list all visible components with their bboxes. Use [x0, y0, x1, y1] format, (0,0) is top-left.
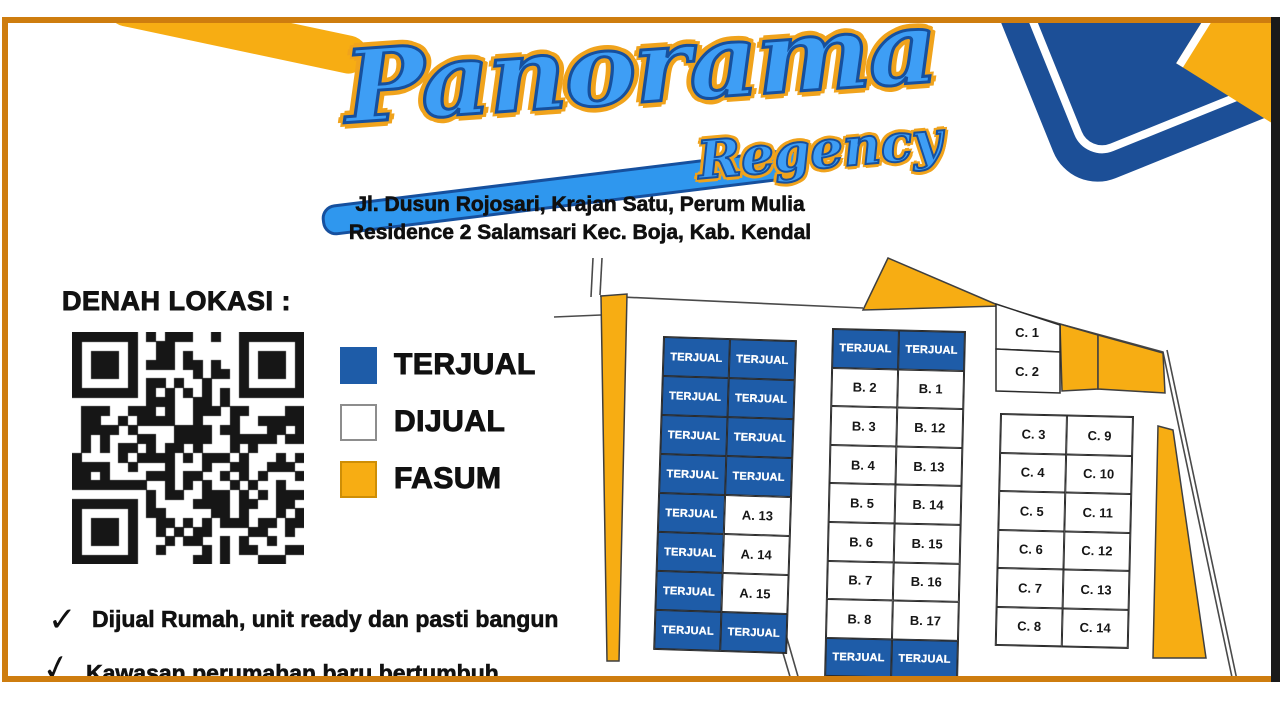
legend-row-terjual: TERJUAL: [340, 346, 536, 384]
lot-cell: B. 14: [895, 485, 962, 525]
feature-item-1: ✓ Dijual Rumah, unit ready dan pasti ban…: [48, 604, 612, 635]
page-margin-top: [0, 0, 1280, 17]
qr-code: [72, 332, 304, 564]
fasum-right-strip: [1153, 426, 1206, 658]
address-line-2: Residence 2 Salamsari Kec. Boja, Kab. Ke…: [320, 219, 840, 247]
lot-cell: C. 10: [1065, 454, 1132, 494]
lot-cell: B. 4: [829, 445, 896, 485]
lot-cell-sold: TERJUAL: [720, 612, 787, 653]
location-map-heading: DENAH LOKASI :: [62, 286, 291, 317]
lot-cell: C. 12: [1063, 531, 1130, 571]
lot-cell: C. 5: [998, 491, 1065, 531]
lot-cell: B. 8: [826, 599, 893, 639]
page-margin-bottom: [0, 682, 1280, 720]
lot-cell-sold: TERJUAL: [825, 638, 892, 678]
fasum-triangle: [863, 258, 1000, 310]
legend-row-dijual: DIJUAL: [340, 403, 536, 441]
lot-block-a: TERJUALTERJUALTERJUALTERJUALTERJUALTERJU…: [654, 337, 796, 653]
lot-cell-sold: TERJUAL: [658, 493, 725, 534]
lot-label: C. 1: [1015, 325, 1039, 340]
feature-item-1-text: Dijual Rumah, unit ready dan pasti bangu…: [92, 604, 612, 635]
lot-cell-sold: TERJUAL: [662, 376, 729, 417]
check-icon: ✓: [48, 600, 77, 640]
lot-cell-sold: TERJUAL: [663, 337, 730, 378]
lot-c1-c2: [996, 304, 1060, 393]
lot-cell-sold: TERJUAL: [660, 415, 727, 456]
lot-cell-sold: TERJUAL: [891, 639, 958, 679]
flyer-root: Panorama Regency Jl. Dusun Rojosari, Kra…: [0, 0, 1280, 720]
legend-label: TERJUAL: [394, 348, 536, 382]
lot-cell: B. 5: [829, 483, 896, 523]
lot-block-c: C. 3C. 9C. 4C. 10C. 5C. 11C. 6C. 12C. 7C…: [996, 414, 1133, 648]
lot-cell-sold: TERJUAL: [657, 532, 724, 573]
black-edge-bar: [1271, 17, 1280, 682]
lot-cell-sold: TERJUAL: [654, 610, 721, 651]
lot-cell: A. 15: [721, 573, 788, 614]
lot-cell: B. 6: [828, 522, 895, 562]
lot-cell-sold: TERJUAL: [659, 454, 726, 495]
fasum-quad-2: [1098, 335, 1165, 393]
lot-cell: B. 7: [827, 561, 894, 601]
lot-cell-sold: TERJUAL: [898, 330, 965, 370]
lot-cell-sold: TERJUAL: [655, 571, 722, 612]
page-margin-left: [0, 17, 2, 682]
lot-cell-sold: TERJUAL: [728, 378, 795, 419]
legend-swatch-dijual: [340, 404, 377, 441]
lot-cell: C. 3: [1000, 414, 1067, 454]
lot-cell: C. 6: [998, 529, 1065, 569]
legend: TERJUALDIJUALFASUM: [340, 346, 536, 517]
lot-label: C. 2: [1015, 364, 1039, 379]
address-line-1: Jl. Dusun Rojosari, Krajan Satu, Perum M…: [320, 191, 840, 219]
lot-cell: B. 16: [893, 562, 960, 602]
lot-cell: C. 11: [1064, 492, 1131, 532]
lot-cell: B. 12: [896, 408, 963, 448]
legend-label: DIJUAL: [394, 405, 505, 439]
lot-cell: B. 17: [892, 601, 959, 641]
flyer-content: Panorama Regency Jl. Dusun Rojosari, Kra…: [0, 0, 1280, 720]
lot-cell: B. 13: [895, 446, 962, 486]
lot-block-b: TERJUALTERJUALB. 2B. 1B. 3B. 12B. 4B. 13…: [825, 329, 965, 679]
lot-cell: C. 9: [1066, 415, 1133, 455]
lot-cell-sold: TERJUAL: [726, 417, 793, 458]
lot-cell: C. 13: [1063, 569, 1130, 609]
legend-row-fasum: FASUM: [340, 460, 536, 498]
fasum-quad-1: [1060, 324, 1098, 391]
lot-cell: B. 15: [894, 523, 961, 563]
lot-cell: B. 1: [897, 369, 964, 409]
legend-label: FASUM: [394, 462, 502, 496]
lot-cell: C. 14: [1062, 608, 1129, 648]
qr-code-canvas: [72, 332, 304, 564]
lot-cell: C. 4: [999, 452, 1066, 492]
lot-cell-sold: TERJUAL: [832, 329, 899, 369]
lot-cell: C. 7: [997, 568, 1064, 608]
lot-cell: A. 14: [723, 534, 790, 575]
legend-swatch-terjual: [340, 347, 377, 384]
lot-cell-sold: TERJUAL: [725, 456, 792, 497]
lot-cell: C. 8: [996, 606, 1063, 646]
lot-cell: B. 2: [831, 368, 898, 408]
address: Jl. Dusun Rojosari, Krajan Satu, Perum M…: [320, 191, 840, 247]
lot-cell-sold: TERJUAL: [729, 339, 796, 380]
lot-cell: A. 13: [724, 495, 791, 536]
legend-swatch-fasum: [340, 461, 377, 498]
lot-cell: B. 3: [830, 406, 897, 446]
